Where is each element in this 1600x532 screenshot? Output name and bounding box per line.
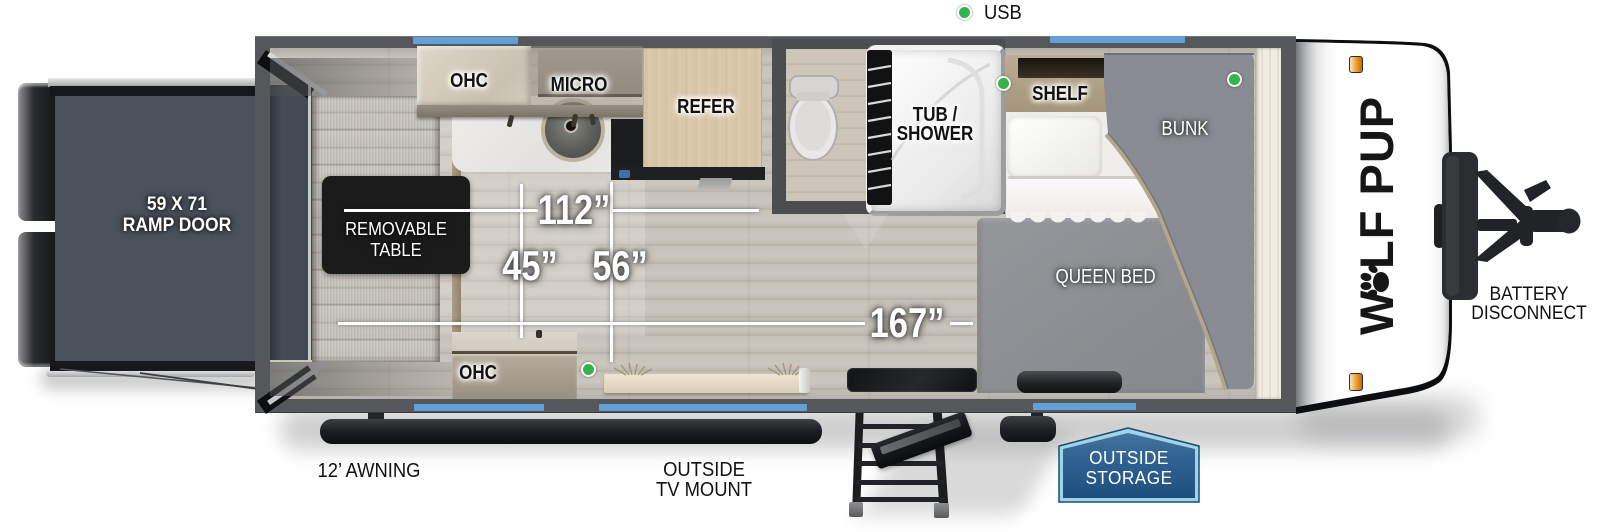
svg-text:LF PUP: LF PUP [1350, 96, 1403, 269]
svg-text:W: W [1350, 290, 1403, 335]
svg-text:OUTSIDE: OUTSIDE [1089, 447, 1169, 468]
svg-text:STORAGE: STORAGE [1085, 467, 1172, 488]
